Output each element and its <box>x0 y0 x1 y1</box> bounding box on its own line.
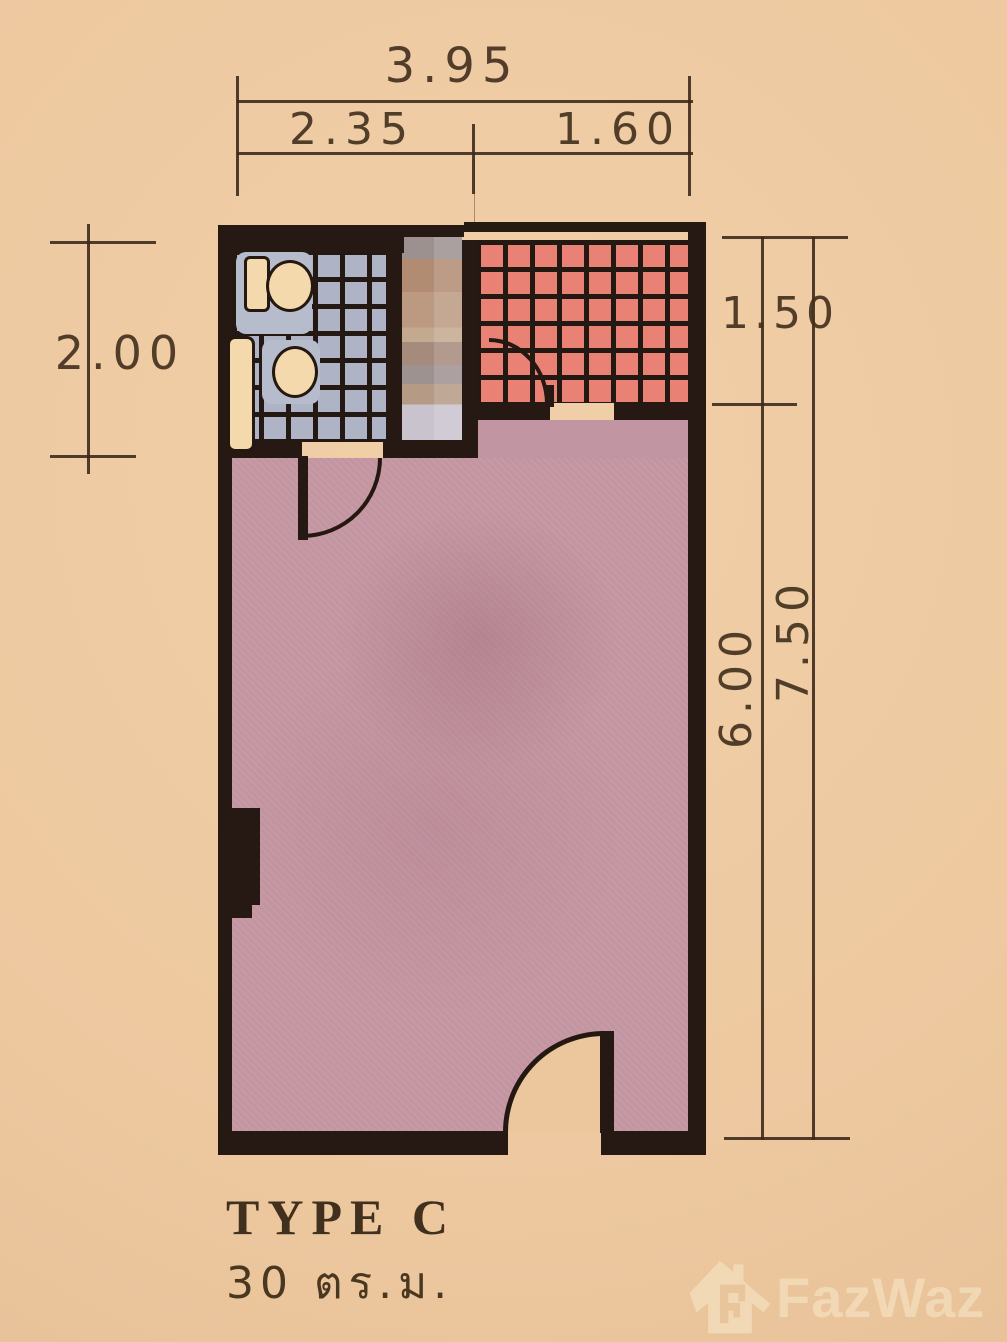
bathroom-door-leaf <box>298 456 308 540</box>
wall-bottom-left <box>218 1131 508 1155</box>
dim-ext-top-mid <box>474 155 475 222</box>
unit-type-label: TYPE C <box>226 1188 456 1246</box>
wall-bottom-right <box>601 1131 706 1155</box>
unit-area-label: 30 ตร.ม. <box>226 1248 453 1318</box>
toilet-bowl <box>266 260 314 312</box>
watermark-brand-text: FazWaz <box>776 1265 985 1330</box>
watermark: FazWaz <box>688 1255 1007 1340</box>
sink-fixture <box>272 346 318 398</box>
dim-label-right-main-segment: 6.00 <box>711 601 757 771</box>
dim-label-top-right-segment: 1.60 <box>528 104 708 155</box>
wall-left-column-step <box>218 905 252 918</box>
dim-label-top-total: 3.95 <box>332 38 572 94</box>
counter-fixture <box>227 336 255 452</box>
dim-label-right-top-segment: 1.50 <box>706 288 854 339</box>
wall-bathroom-bottom-b <box>383 440 478 458</box>
house-logo-icon <box>688 1256 772 1340</box>
dim-tick-left-top <box>50 241 156 244</box>
dim-tick-right-top <box>722 236 848 239</box>
wall-bathroom-divider <box>386 250 402 458</box>
wall-left-column <box>218 808 260 905</box>
dim-tick-top-left <box>236 76 239 196</box>
dim-tick-right-bottom <box>724 1137 850 1140</box>
wall-closet-divider <box>462 240 478 458</box>
dim-tick-right-mid <box>712 403 797 406</box>
wall-red-bottom-a <box>476 403 550 420</box>
wall-top-right-thin <box>464 222 706 232</box>
wall-red-bottom-b <box>614 403 688 420</box>
red-area-door-leaf <box>545 385 554 407</box>
dim-label-left-side: 2.00 <box>40 326 200 380</box>
entrance-door-leaf <box>600 1031 614 1133</box>
dim-label-top-left-segment: 2.35 <box>262 104 442 155</box>
dim-tick-left-bottom <box>50 455 136 458</box>
main-room-upper-strip <box>476 420 688 458</box>
dim-label-right-total: 7.50 <box>768 555 814 725</box>
floor-plan-canvas: 3.95 2.35 1.60 2.00 1.50 6.00 7.50 TYPE … <box>0 0 1007 1342</box>
wall-top-left <box>218 225 404 253</box>
blurred-area <box>400 234 462 442</box>
dim-line-top-total <box>237 100 693 103</box>
wall-right <box>688 222 706 1155</box>
wall-top-mid <box>402 225 464 237</box>
main-room-area <box>232 458 688 1131</box>
